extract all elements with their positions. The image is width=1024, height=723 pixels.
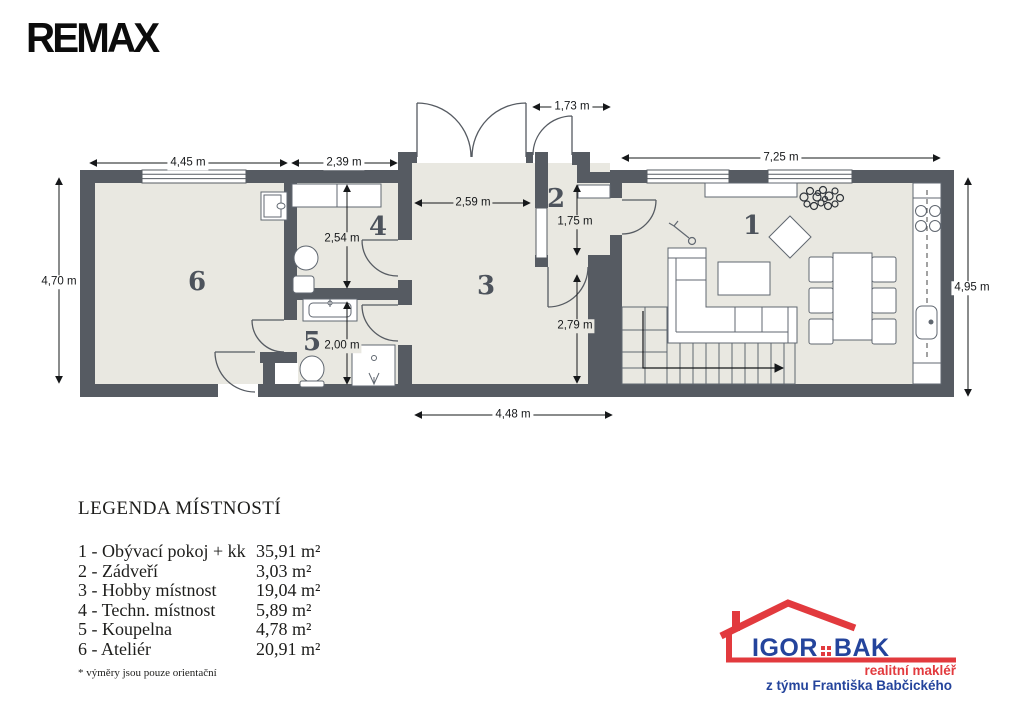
dim-label: 2,00 m: [322, 339, 361, 353]
legend-room-name: 6 - Ateliér: [78, 640, 256, 660]
dim-label: 2,39 m: [323, 156, 364, 170]
legend-room-area: 20,91 m²: [256, 640, 320, 660]
legend-row: 4 - Techn. místnost 5,89 m²: [78, 601, 320, 621]
double-door-left: [417, 103, 471, 157]
room-label-2: 2: [547, 186, 565, 212]
legend-room-name: 4 - Techn. místnost: [78, 601, 256, 621]
agent-last-name: BAK: [834, 634, 890, 663]
legend-room-area: 3,03 m²: [256, 562, 311, 582]
coffee-table: [718, 262, 770, 295]
agent-first-name: IGOR: [752, 634, 818, 663]
dining-table: [833, 253, 872, 340]
legend-room-area: 5,89 m²: [256, 601, 311, 621]
sideboard: [705, 183, 797, 197]
agent-logo-name: IGOR BAK: [752, 634, 890, 663]
toilet: [300, 356, 324, 382]
legend-room-name: 1 - Obývací pokoj + kk: [78, 542, 256, 562]
dim-label: 4,45 m: [167, 156, 208, 170]
legend-row: 5 - Koupelna 4,78 m²: [78, 620, 320, 640]
dim-label: 1,73 m: [551, 100, 592, 114]
room-label-6: 6: [188, 269, 206, 295]
dim-label: 2,79 m: [555, 319, 594, 333]
legend-row: 2 - Zádveří 3,03 m²: [78, 562, 320, 582]
dim-label: 1,75 m: [555, 215, 594, 229]
dim-label: 2,54 m: [322, 232, 361, 246]
room-label-1: 1: [743, 213, 761, 239]
legend-room-name: 5 - Koupelna: [78, 620, 256, 640]
logo-separator-icon: [821, 646, 831, 656]
dim-label: 4,95 m: [951, 281, 992, 295]
dim-label: 4,70 m: [38, 275, 79, 289]
boiler: [294, 246, 318, 270]
hall-cabinet: [578, 185, 610, 198]
legend-row: 6 - Ateliér 20,91 m²: [78, 640, 320, 660]
kitchen-counter: [913, 183, 941, 384]
dim-label: 2,59 m: [453, 196, 492, 210]
legend-row: 1 - Obývací pokoj + kk 35,91 m²: [78, 542, 320, 562]
door-panel: [536, 208, 547, 258]
agent-tagline: realitní makléř: [864, 663, 956, 678]
kitchen-sink: [916, 306, 937, 339]
entrance-door: [533, 116, 572, 155]
legend-room-area: 35,91 m²: [256, 542, 320, 562]
room-label-5: 5: [303, 329, 321, 355]
legend-room-area: 19,04 m²: [256, 581, 320, 601]
legend-row: 3 - Hobby místnost 19,04 m²: [78, 581, 320, 601]
double-door-right: [472, 103, 526, 157]
legend-room-area: 4,78 m²: [256, 620, 311, 640]
dim-label: 7,25 m: [760, 151, 801, 165]
dim-label: 4,48 m: [492, 408, 533, 422]
legend-footnote: * výměry jsou pouze orientační: [78, 667, 217, 679]
shaft: [275, 363, 298, 384]
agent-team: z týmu Františka Babčického: [766, 678, 952, 693]
legend-room-name: 3 - Hobby místnost: [78, 581, 256, 601]
room-legend: LEGENDA MÍSTNOSTÍ 1 - Obývací pokoj + kk…: [78, 498, 320, 659]
legend-title: LEGENDA MÍSTNOSTÍ: [78, 498, 320, 520]
legend-room-name: 2 - Zádveří: [78, 562, 256, 582]
atelier-sink: [261, 192, 287, 220]
room-label-3: 3: [477, 273, 495, 299]
room-label-4: 4: [369, 214, 387, 240]
floorplan-page: REMAX: [0, 0, 1024, 723]
